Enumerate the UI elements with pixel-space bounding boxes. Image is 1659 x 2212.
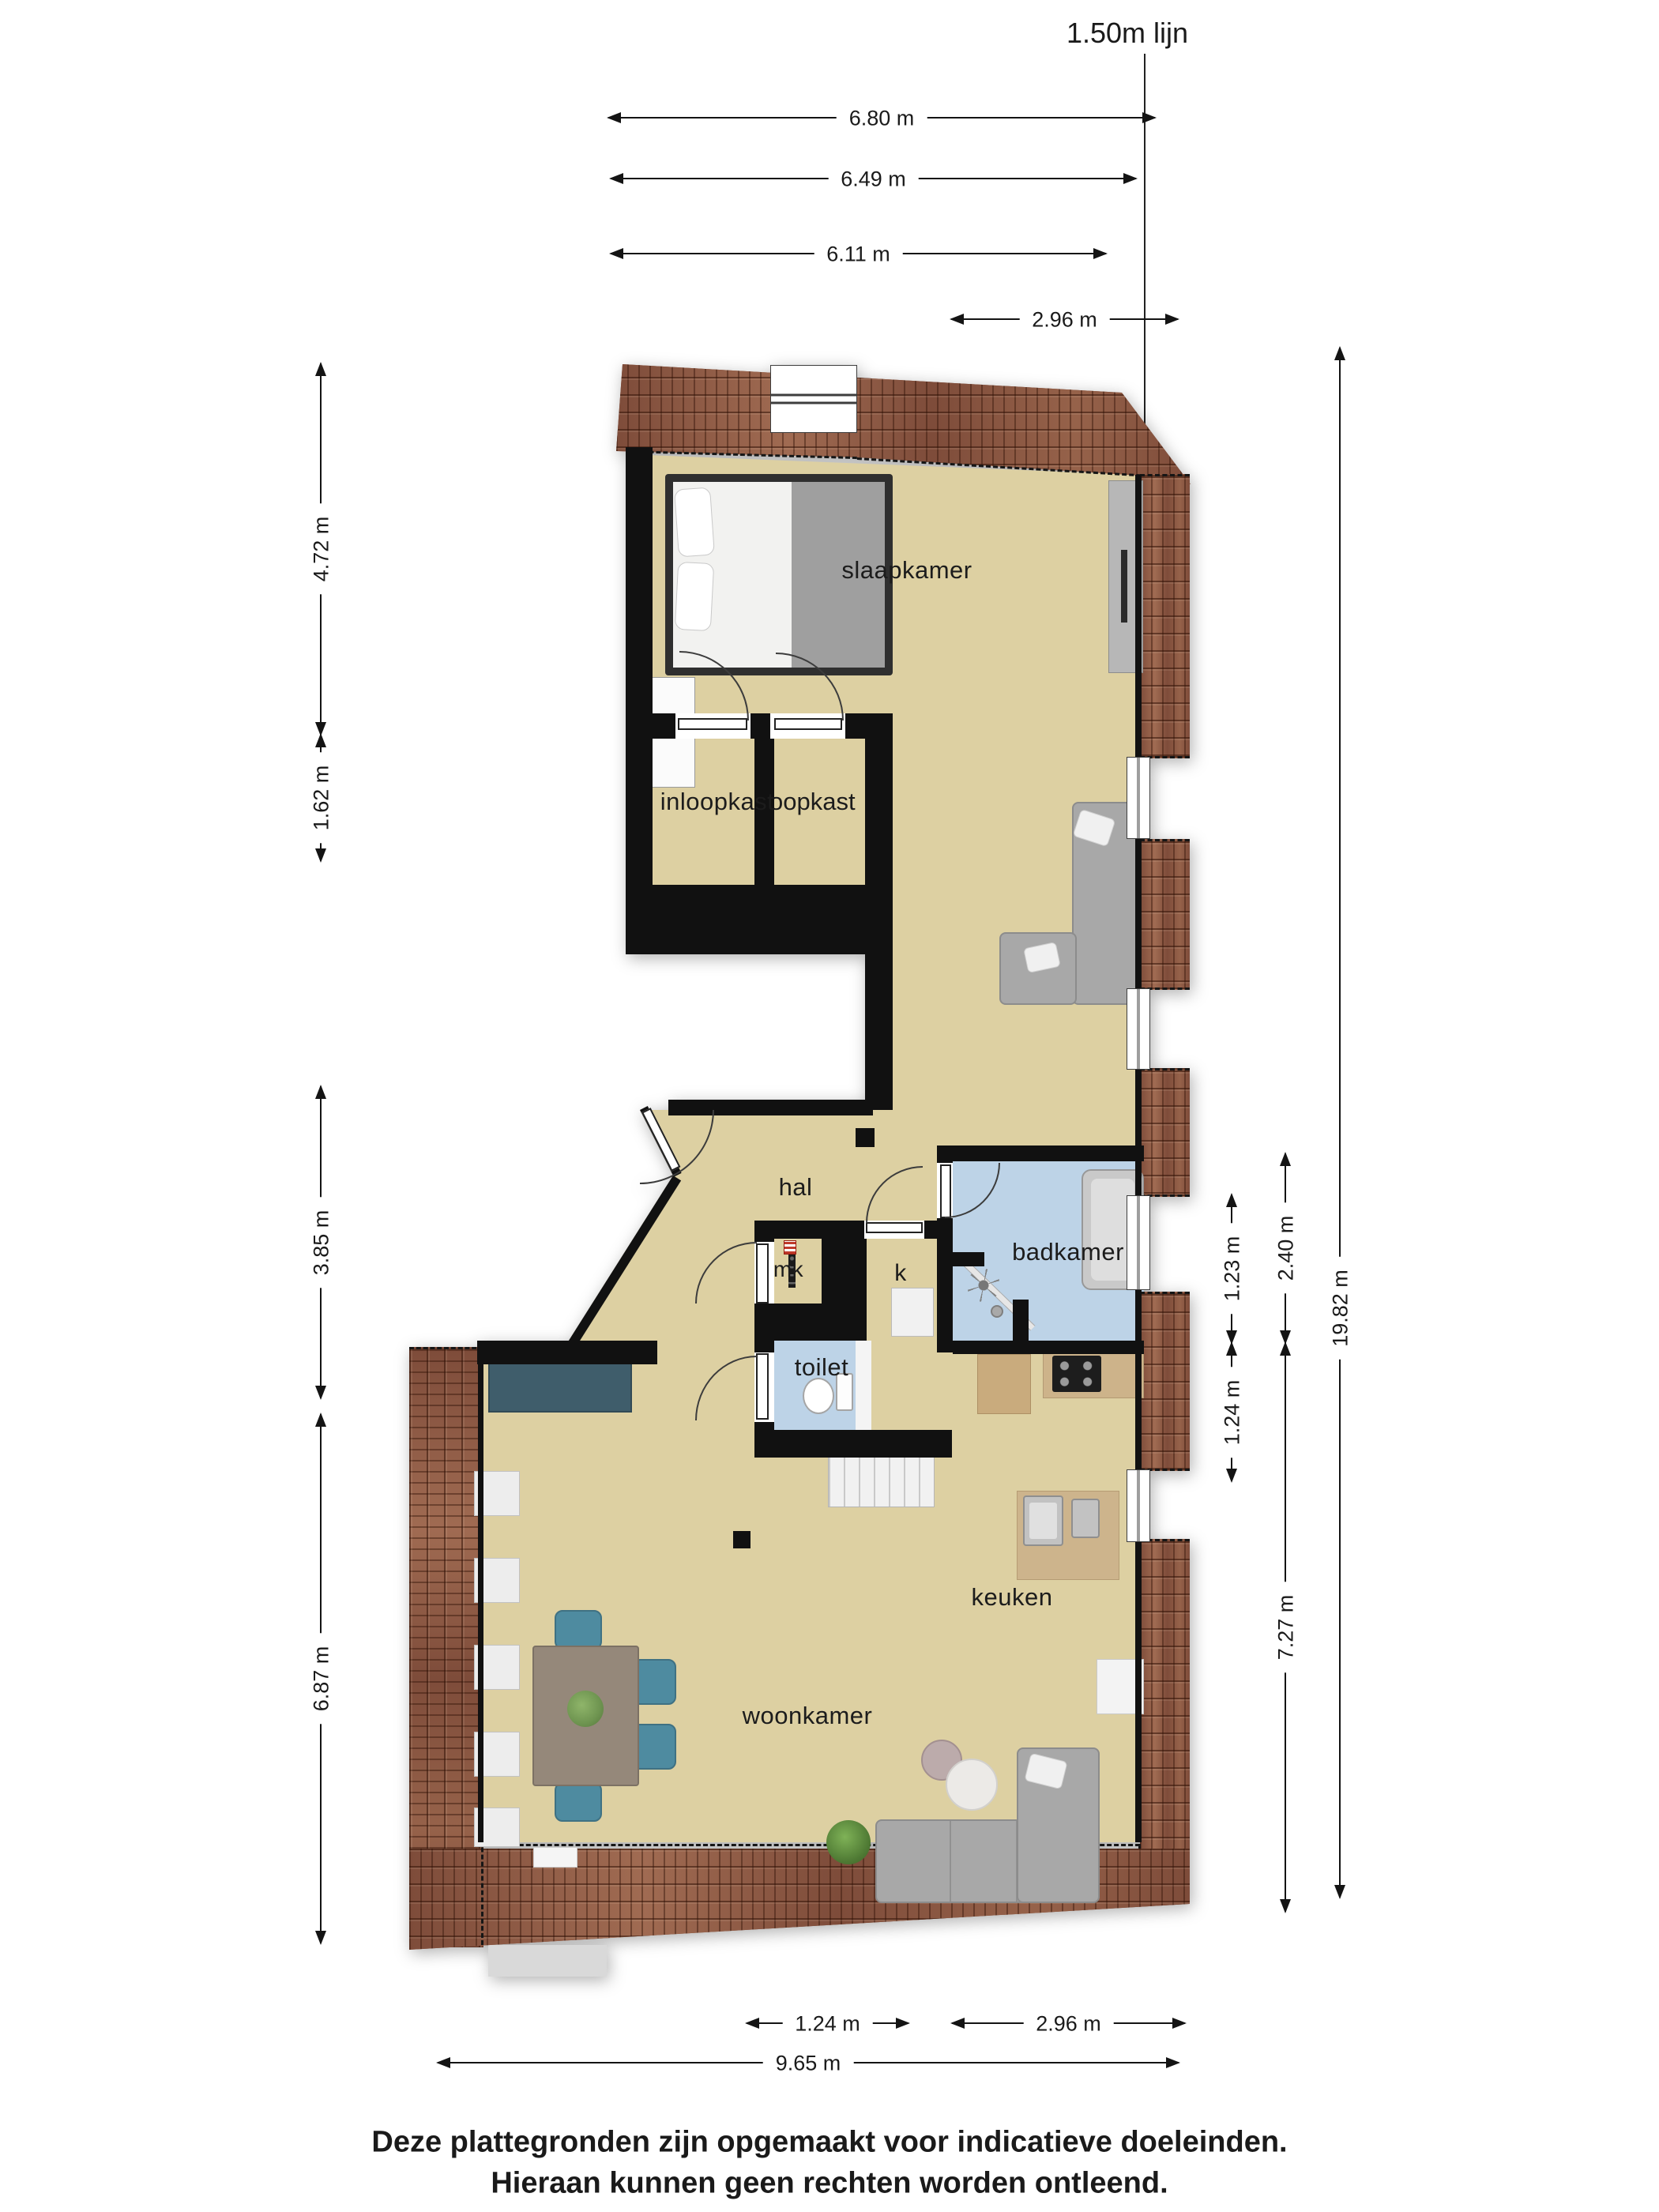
dim-label: 2.40 m bbox=[1274, 1203, 1299, 1294]
toilet-plumbing-wall bbox=[856, 1341, 871, 1430]
table-plant bbox=[567, 1691, 604, 1727]
dim-label: 6.49 m bbox=[828, 167, 919, 192]
sink-small bbox=[1071, 1499, 1100, 1538]
wall bbox=[626, 713, 893, 739]
wall bbox=[1013, 1300, 1029, 1341]
dim-bottom-124: 1.24 m bbox=[747, 2022, 908, 2024]
door-leaf bbox=[756, 1353, 769, 1420]
column-stub bbox=[733, 1531, 750, 1548]
dim-label: 1.23 m bbox=[1221, 1224, 1245, 1315]
toilet-bowl bbox=[803, 1378, 834, 1414]
room-label-inloopkast-right: inloopkast bbox=[774, 785, 863, 818]
wall bbox=[1135, 1540, 1142, 1842]
dim-top-296: 2.96 m bbox=[951, 318, 1178, 320]
dim-label: 2.96 m bbox=[1019, 308, 1110, 333]
exterior-step bbox=[488, 1945, 607, 1977]
wall bbox=[754, 1430, 952, 1458]
dim-right-124: 1.24 m bbox=[1231, 1343, 1232, 1481]
wall bbox=[822, 1239, 867, 1341]
dim-label: 1.62 m bbox=[310, 753, 334, 844]
wall bbox=[1135, 475, 1142, 758]
wall bbox=[478, 1341, 483, 1842]
dim-label: 19.82 m bbox=[1329, 1258, 1353, 1360]
sink-large-basin bbox=[1029, 1503, 1057, 1539]
dim-label: 2.96 m bbox=[1023, 2012, 1114, 2037]
window bbox=[770, 365, 857, 433]
window bbox=[1127, 1195, 1150, 1290]
dim-left-385: 3.85 m bbox=[320, 1086, 322, 1398]
room-label-k: k bbox=[894, 1260, 907, 1287]
dim-bottom-296: 2.96 m bbox=[952, 2022, 1185, 2024]
room-label-slaapkamer: slaapkamer bbox=[841, 556, 972, 585]
dining-chair bbox=[555, 1610, 602, 1650]
dim-top-680: 6.80 m bbox=[608, 117, 1155, 118]
dim-right-1982: 19.82 m bbox=[1339, 348, 1341, 1898]
roof-right-4 bbox=[1140, 1292, 1190, 1471]
dim-label: 7.27 m bbox=[1274, 1582, 1299, 1673]
roof-right-5 bbox=[1140, 1539, 1190, 1855]
window bbox=[1127, 988, 1150, 1070]
shower-drain bbox=[991, 1305, 1003, 1318]
title-150m-lijn: 1.50m lijn bbox=[1066, 17, 1188, 50]
floor-vent bbox=[533, 1847, 577, 1868]
dim-label: 1.24 m bbox=[1221, 1367, 1245, 1458]
dim-label: 1.24 m bbox=[782, 2012, 873, 2037]
roof-right-3 bbox=[1140, 1068, 1190, 1197]
room-label-woonkamer: woonkamer bbox=[743, 1702, 873, 1730]
dim-label: 4.72 m bbox=[310, 504, 334, 595]
room-label-toilet: toilet bbox=[795, 1353, 848, 1382]
door-leaf bbox=[756, 1243, 769, 1303]
coffee-table-large bbox=[946, 1759, 998, 1811]
building bbox=[0, 0, 1659, 2212]
dim-right-240: 2.40 m bbox=[1285, 1153, 1286, 1343]
dim-right-727: 7.27 m bbox=[1285, 1343, 1286, 1912]
dim-top-649: 6.49 m bbox=[611, 178, 1136, 179]
plant bbox=[826, 1820, 871, 1864]
wardrobe-handle bbox=[1121, 550, 1127, 623]
roof-right-1 bbox=[1140, 474, 1190, 758]
bed-pillow-bottom bbox=[675, 562, 714, 631]
wall bbox=[953, 1341, 1144, 1354]
wall bbox=[937, 1145, 1144, 1161]
cooktop bbox=[1052, 1356, 1101, 1392]
shower-head bbox=[967, 1269, 1000, 1302]
floorplan-page: slaapkamer inloopkast inloopkast hal mk … bbox=[0, 0, 1659, 2212]
wall bbox=[1135, 1068, 1142, 1197]
dim-label: 6.80 m bbox=[837, 107, 927, 131]
wall bbox=[637, 885, 865, 954]
kitchen-cabinet bbox=[977, 1354, 1031, 1414]
column-stub bbox=[856, 1128, 875, 1147]
dim-bottom-965: 9.65 m bbox=[438, 2062, 1179, 2063]
wall bbox=[953, 1252, 984, 1266]
room-label-inloopkast-right-text: inloopkast bbox=[774, 785, 856, 818]
roof-right-2 bbox=[1140, 839, 1190, 990]
wall bbox=[477, 1341, 657, 1364]
wall bbox=[1135, 837, 1142, 990]
dim-label: 9.65 m bbox=[763, 2052, 854, 2076]
dim-left-162: 1.62 m bbox=[320, 735, 322, 861]
wall bbox=[865, 713, 893, 1110]
dim-top-611: 6.11 m bbox=[611, 253, 1106, 254]
sideboard bbox=[488, 1356, 632, 1413]
dim-label: 6.11 m bbox=[814, 243, 903, 267]
dim-label: 3.85 m bbox=[310, 1197, 334, 1288]
dim-left-472: 4.72 m bbox=[320, 363, 322, 735]
dim-label: 6.87 m bbox=[310, 1634, 334, 1725]
room-label-mk: mk bbox=[773, 1257, 803, 1282]
window bbox=[1127, 757, 1150, 839]
dim-right-123: 1.23 m bbox=[1231, 1194, 1232, 1343]
wall bbox=[774, 1303, 822, 1341]
room-label-keuken: keuken bbox=[972, 1583, 1053, 1612]
disclaimer-line-2: Hieraan kunnen geen rechten worden ontle… bbox=[491, 2167, 1168, 2201]
room-label-inloopkast-left: inloopkast bbox=[660, 788, 775, 816]
dim-left-687: 6.87 m bbox=[320, 1414, 322, 1943]
meter-box bbox=[784, 1240, 796, 1255]
door-leaf bbox=[866, 1222, 923, 1233]
disclaimer-line-1: Deze plattegronden zijn opgemaakt voor i… bbox=[371, 2126, 1287, 2160]
room-label-badkamer: badkamer bbox=[1012, 1238, 1124, 1266]
room-label-hal: hal bbox=[779, 1173, 813, 1202]
wall bbox=[626, 447, 653, 954]
bed-pillow-top bbox=[674, 487, 715, 558]
dining-chair bbox=[555, 1782, 602, 1822]
window bbox=[1127, 1469, 1150, 1542]
wall bbox=[1135, 1288, 1142, 1471]
k-cabinet bbox=[891, 1288, 934, 1337]
